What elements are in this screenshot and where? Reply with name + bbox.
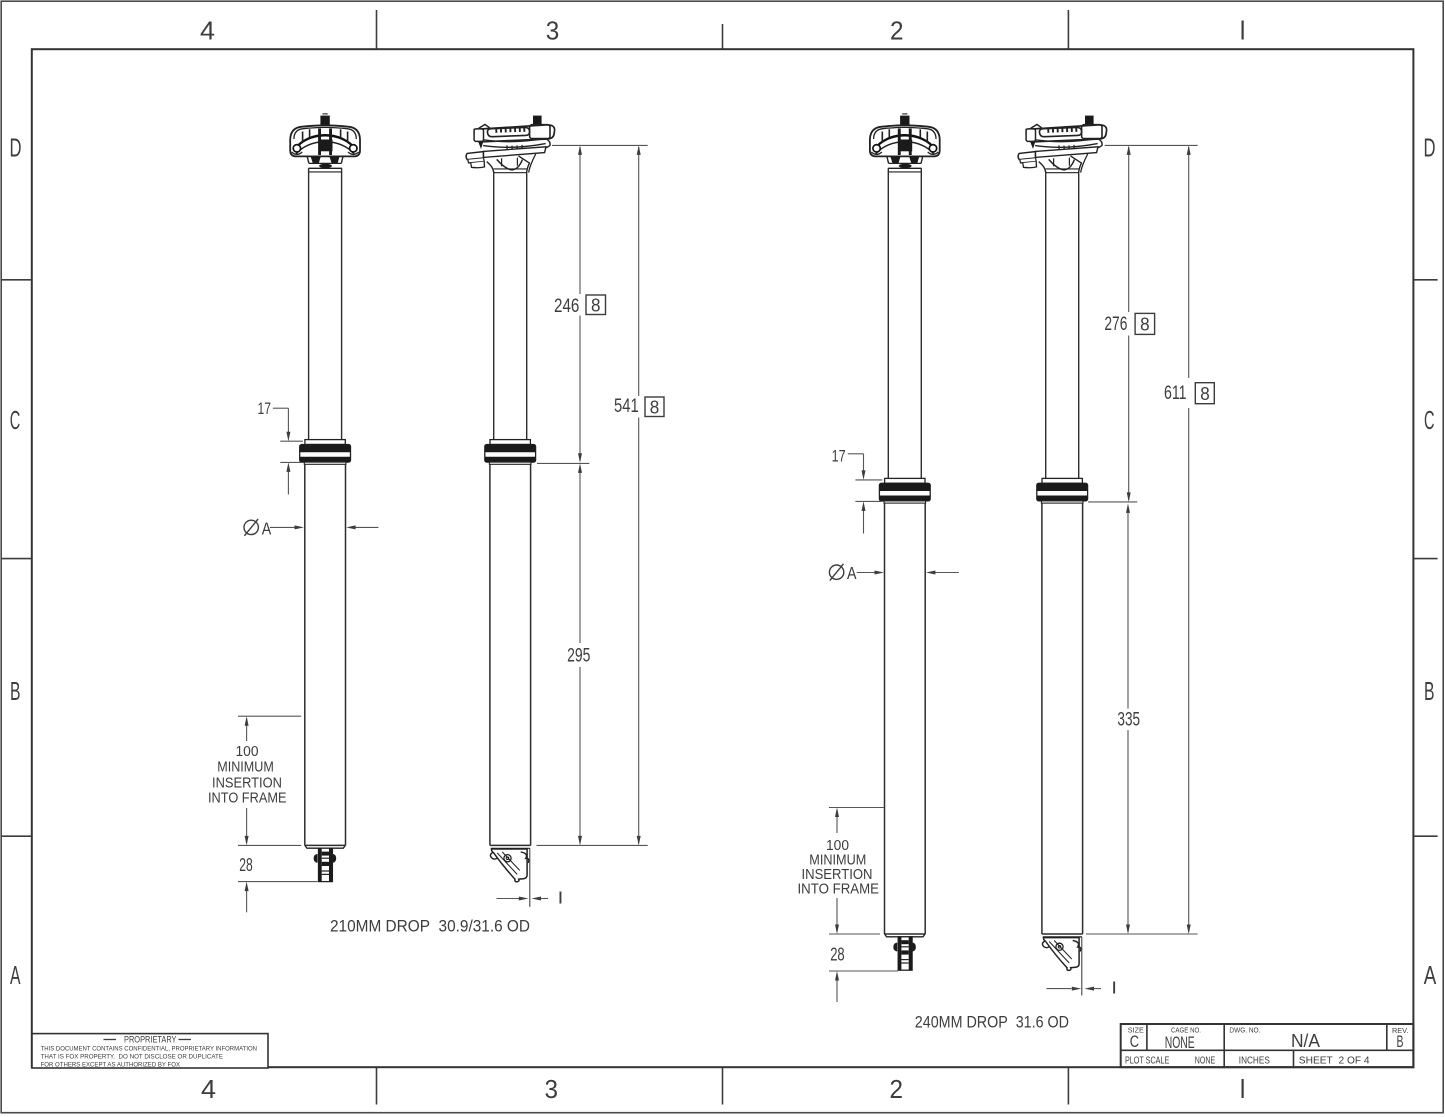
svg-text:335: 335 [1117, 710, 1140, 731]
svg-text:INTO FRAME: INTO FRAME [798, 882, 880, 898]
svg-text:SHEET 2 OF 4: SHEET 2 OF 4 [1299, 1054, 1370, 1066]
svg-text:8: 8 [650, 397, 660, 417]
svg-text:17: 17 [258, 399, 272, 418]
svg-text:295: 295 [567, 646, 590, 667]
svg-text:210MM DROP 30.9/31.6 OD: 210MM DROP 30.9/31.6 OD [330, 918, 530, 936]
svg-text:D: D [10, 133, 22, 163]
svg-text:8: 8 [1140, 315, 1150, 335]
svg-text:MINIMUM: MINIMUM [217, 760, 273, 776]
svg-text:D: D [1424, 133, 1436, 163]
svg-text:8: 8 [591, 295, 601, 315]
svg-text:A: A [847, 563, 857, 583]
svg-text:DWG. NO.: DWG. NO. [1229, 1026, 1260, 1035]
svg-text:PLOT SCALE: PLOT SCALE [1125, 1054, 1169, 1066]
svg-text:2: 2 [890, 16, 904, 46]
svg-text:A: A [1424, 960, 1437, 990]
svg-text:B: B [1397, 1033, 1404, 1051]
svg-text:8: 8 [1200, 384, 1210, 404]
svg-text:3: 3 [546, 16, 560, 46]
svg-text:C: C [1424, 405, 1435, 435]
svg-text:C: C [1130, 1033, 1139, 1051]
svg-text:28: 28 [239, 855, 252, 875]
svg-text:B: B [10, 676, 21, 706]
svg-text:A: A [10, 960, 21, 990]
svg-text:PROPRIETARY: PROPRIETARY [124, 1035, 177, 1045]
svg-text:3: 3 [545, 1074, 559, 1104]
svg-text:4: 4 [201, 1074, 216, 1104]
svg-text:THAT IS FOX PROPERTY. DO NOT: THAT IS FOX PROPERTY. DO NOT DISCLOSE OR… [41, 1053, 224, 1060]
svg-text:611: 611 [1164, 383, 1187, 404]
svg-text:NONE: NONE [1165, 1034, 1195, 1052]
svg-text:100: 100 [236, 744, 259, 760]
svg-text:276: 276 [1104, 314, 1127, 335]
svg-text:B: B [1424, 676, 1435, 706]
svg-text:28: 28 [830, 945, 845, 965]
svg-text:17: 17 [832, 447, 846, 466]
svg-text:INSERTION: INSERTION [212, 776, 282, 792]
svg-text:240MM DROP 31.6 OD: 240MM DROP 31.6 OD [915, 1013, 1069, 1032]
svg-text:INTO FRAME: INTO FRAME [208, 791, 287, 807]
svg-text:541: 541 [614, 396, 639, 417]
svg-text:FOR OTHERS EXCEPT AS AUTHORIZE: FOR OTHERS EXCEPT AS AUTHORIZED BY FOX [41, 1061, 181, 1068]
svg-text:246: 246 [554, 296, 579, 317]
svg-text:2: 2 [890, 1074, 904, 1104]
svg-text:INCHES: INCHES [1239, 1054, 1270, 1066]
svg-text:N/A: N/A [1291, 1030, 1321, 1051]
svg-text:C: C [10, 405, 20, 435]
svg-text:THIS DOCUMENT CONTAINS CONFIDE: THIS DOCUMENT CONTAINS CONFIDENTIAL, PRO… [41, 1045, 257, 1052]
svg-text:NONE: NONE [1195, 1054, 1215, 1066]
svg-text:A: A [262, 519, 272, 539]
svg-text:4: 4 [200, 16, 215, 46]
